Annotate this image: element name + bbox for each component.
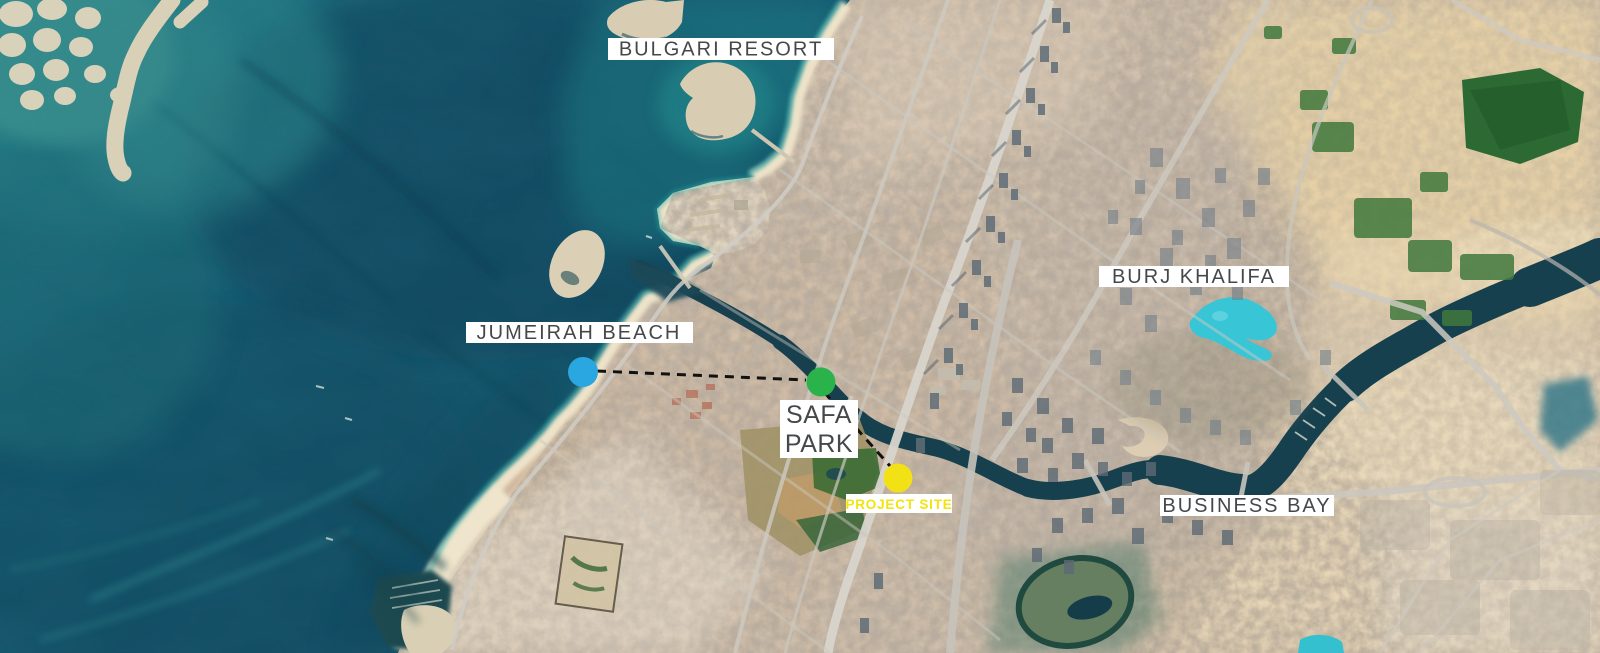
svg-text:PROJECT SITE: PROJECT SITE xyxy=(845,497,952,512)
svg-text:SAFA: SAFA xyxy=(786,401,852,429)
svg-text:BULGARI RESORT: BULGARI RESORT xyxy=(619,39,823,61)
svg-text:PARK: PARK xyxy=(785,430,853,458)
svg-text:JUMEIRAH BEACH: JUMEIRAH BEACH xyxy=(477,322,682,344)
svg-text:BUSINESS BAY: BUSINESS BAY xyxy=(1162,495,1331,517)
svg-text:BURJ KHALIFA: BURJ KHALIFA xyxy=(1112,266,1276,288)
